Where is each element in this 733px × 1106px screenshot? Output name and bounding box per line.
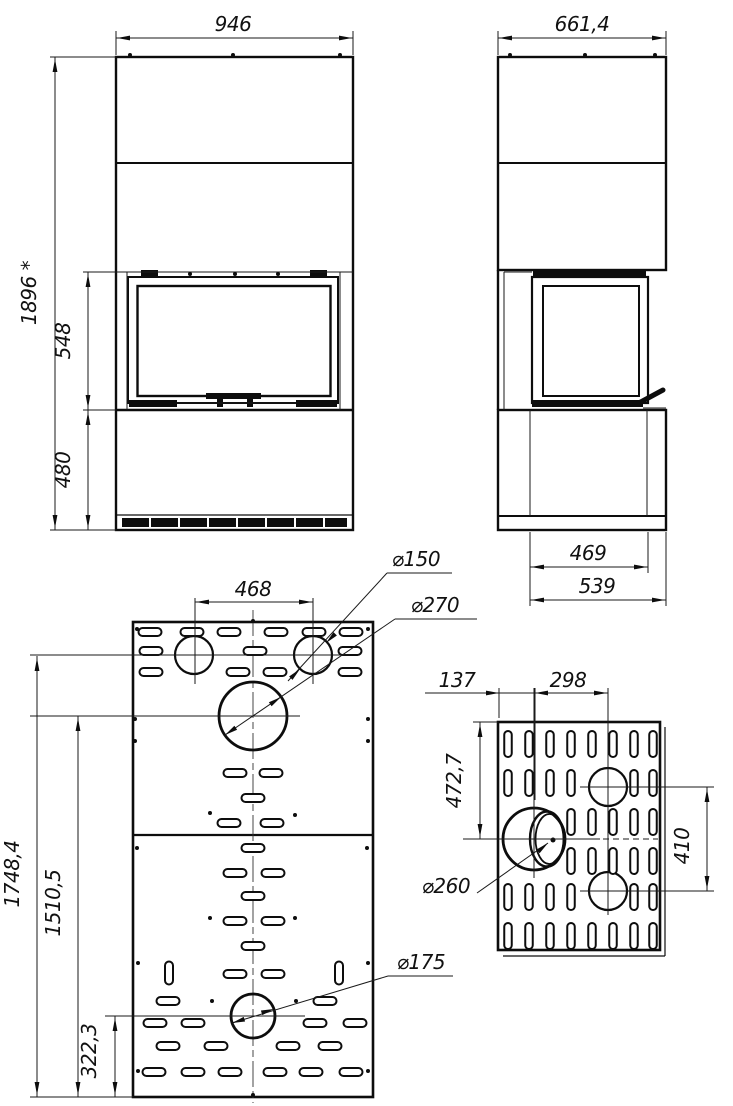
vent-slot xyxy=(182,1068,205,1076)
front-view xyxy=(116,57,353,530)
vent-slot xyxy=(264,668,287,676)
weld-dot xyxy=(653,53,657,57)
dim-rear-flue-dia-150: ⌀150 xyxy=(392,547,440,571)
door-sill-right xyxy=(296,400,337,407)
vent-slot xyxy=(303,628,326,636)
dimension-arrow xyxy=(76,1082,81,1095)
vent-slot xyxy=(630,770,638,796)
fireplace-drawing: 946 1896 * 548 480 661,4 469 539 468 ⌀15… xyxy=(0,0,733,1106)
vent-slot xyxy=(649,809,657,835)
vent-slot xyxy=(546,923,554,949)
weld-dot xyxy=(338,53,342,57)
vent-slot xyxy=(649,731,657,757)
door-lever-handle xyxy=(637,390,663,404)
vent-slot xyxy=(504,923,512,949)
vent-slot xyxy=(265,628,288,636)
vent-slot xyxy=(340,628,363,636)
dimension-arrow xyxy=(35,1082,40,1095)
vent-slot xyxy=(340,1068,363,1076)
weld-dot xyxy=(208,811,212,815)
dim-rear-center-flue-height: 1510,5 xyxy=(41,870,65,937)
dimension-arrow xyxy=(53,59,58,72)
weld-dot xyxy=(210,999,214,1003)
dim-front-overall-height: 1896 * xyxy=(17,260,41,325)
vent-slot xyxy=(630,848,638,874)
dimension-arrow xyxy=(499,36,512,41)
vent-slot xyxy=(157,1042,180,1050)
weld-dot xyxy=(583,53,587,57)
weld-dot xyxy=(251,619,255,623)
weld-dot xyxy=(208,916,212,920)
thin-line xyxy=(232,976,388,1023)
vent-slot xyxy=(224,917,247,925)
vent-slot xyxy=(546,770,554,796)
weld-dot xyxy=(366,717,370,721)
vent-slot xyxy=(567,884,575,910)
weld-dot xyxy=(294,999,298,1003)
vent-slot xyxy=(525,770,533,796)
vent-slot xyxy=(224,769,247,777)
dimension-arrow xyxy=(196,600,209,605)
vent-slot xyxy=(181,628,204,636)
vent-slot xyxy=(630,923,638,949)
weld-dot xyxy=(508,53,512,57)
spigot-axis-mark xyxy=(551,838,556,843)
dimension-arrow xyxy=(113,1082,118,1095)
weld-dot xyxy=(293,813,297,817)
front-body-outline xyxy=(116,57,353,530)
side-pedestal xyxy=(498,410,666,530)
vent-slot xyxy=(244,647,267,655)
weld-dot xyxy=(128,53,132,57)
rear-vent-slots xyxy=(139,628,367,1076)
vent-slot xyxy=(182,1019,205,1027)
side-vent-slots xyxy=(504,731,657,949)
vent-slot xyxy=(143,1068,166,1076)
weld-dot xyxy=(366,1069,370,1073)
vent-slot xyxy=(262,970,285,978)
dim-rear-flue-dia-175: ⌀175 xyxy=(397,950,445,974)
vent-slot xyxy=(567,848,575,874)
side-door-profile xyxy=(532,277,648,403)
side-door-glass xyxy=(543,286,639,396)
vent-slot xyxy=(224,869,247,877)
vent-slot xyxy=(649,848,657,874)
dimension-arrow xyxy=(76,718,81,731)
weld-dot xyxy=(133,739,137,743)
dimension-arrow xyxy=(478,724,483,737)
vent-slot xyxy=(567,809,575,835)
vent-slot xyxy=(260,769,283,777)
vent-slot xyxy=(630,809,638,835)
door-sill-left xyxy=(129,400,177,407)
vent-slot xyxy=(588,923,596,949)
dimension-arrow xyxy=(535,691,548,696)
dim-rear-flue-dia-270: ⌀270 xyxy=(411,593,459,617)
vent-slot xyxy=(344,1019,367,1027)
vent-slot xyxy=(144,1019,167,1027)
dim-side-base-depth: 539 xyxy=(579,574,616,598)
weld-dots xyxy=(128,53,657,1097)
weld-dot xyxy=(366,739,370,743)
vent-slot xyxy=(609,809,617,835)
weld-dot xyxy=(188,272,192,276)
weld-dot xyxy=(136,961,140,965)
dimension-arrow xyxy=(261,1009,274,1015)
dimension-arrow xyxy=(86,274,91,287)
weld-dot xyxy=(251,1093,255,1097)
dimension-labels: 946 1896 * 548 480 661,4 469 539 468 ⌀15… xyxy=(0,12,694,1078)
vent-slot xyxy=(525,884,533,910)
vent-slot xyxy=(227,668,250,676)
door-handle-bar xyxy=(206,393,261,399)
side-door-top-seal xyxy=(533,271,646,277)
dim-front-firebox-height: 548 xyxy=(51,323,75,360)
vent-slot xyxy=(649,923,657,949)
dimension-arrow xyxy=(113,1018,118,1031)
dim-rear-lower-flue-height: 322,3 xyxy=(77,1024,101,1079)
dimension-arrow xyxy=(705,789,710,802)
dimension-arrow xyxy=(531,598,544,603)
dim-sp-vertical-spacing: 410 xyxy=(670,828,694,865)
dim-rear-flue-axis-height: 1748,4 xyxy=(0,841,24,908)
vent-slot xyxy=(525,731,533,757)
dimension-arrow xyxy=(486,691,499,696)
dimension-arrow xyxy=(705,876,710,889)
weld-dot xyxy=(366,627,370,631)
vent-slot xyxy=(205,1042,228,1050)
dimension-arrow xyxy=(86,395,91,408)
weld-dot xyxy=(365,846,369,850)
vent-slot xyxy=(140,647,163,655)
side-door-bottom-seal xyxy=(532,400,643,407)
vent-slot xyxy=(504,884,512,910)
vent-slot xyxy=(261,819,284,827)
dimension-arrow xyxy=(299,600,312,605)
technical-drawing-sheet: 946 1896 * 548 480 661,4 469 539 468 ⌀15… xyxy=(0,0,733,1106)
vent-slot xyxy=(339,668,362,676)
dim-sp-top-offset: 472,7 xyxy=(442,753,466,809)
rear-panel-view xyxy=(133,610,373,1103)
dim-sp-axis-spacing: 298 xyxy=(550,668,587,692)
weld-dot xyxy=(133,717,137,721)
dimension-arrow xyxy=(634,565,647,570)
door-hinge-left xyxy=(141,270,158,278)
vent-slot xyxy=(649,770,657,796)
side-view xyxy=(498,57,666,530)
dimension-arrow xyxy=(531,565,544,570)
weld-dot xyxy=(233,272,237,276)
vent-slot xyxy=(339,647,362,655)
vent-slot xyxy=(630,731,638,757)
dim-sp-edge-offset: 137 xyxy=(439,668,476,692)
vent-slot xyxy=(504,731,512,757)
vent-slot xyxy=(157,997,180,1005)
dimension-arrow xyxy=(339,36,352,41)
vent-slot xyxy=(649,884,657,910)
vent-slot xyxy=(224,970,247,978)
weld-dot xyxy=(231,53,235,57)
vent-slot xyxy=(609,848,617,874)
vent-slot xyxy=(319,1042,342,1050)
vent-slot xyxy=(242,892,265,900)
vent-slot xyxy=(264,1068,287,1076)
vent-slot xyxy=(277,1042,300,1050)
vent-slot xyxy=(588,848,596,874)
dimension-arrow xyxy=(53,515,58,528)
door-hinge-right xyxy=(310,270,327,278)
weld-dot xyxy=(293,916,297,920)
base-vent-grille xyxy=(122,518,347,527)
vent-slot xyxy=(242,942,265,950)
weld-dot xyxy=(135,846,139,850)
dimension-arrow xyxy=(594,691,607,696)
dim-front-width: 946 xyxy=(215,12,252,36)
dim-sp-flue-dia-260: ⌀260 xyxy=(422,874,470,898)
dimension-arrow xyxy=(652,36,665,41)
vent-slot xyxy=(314,997,337,1005)
vent-slot xyxy=(567,731,575,757)
weld-dot xyxy=(366,961,370,965)
vent-slot xyxy=(546,731,554,757)
vent-slot xyxy=(588,731,596,757)
dim-front-base-height: 480 xyxy=(51,452,75,489)
vent-slot-vertical xyxy=(165,962,173,985)
vent-slot xyxy=(609,731,617,757)
vent-slot xyxy=(588,809,596,835)
vent-slot-vertical xyxy=(335,962,343,985)
dimension-arrow xyxy=(35,658,40,671)
dim-side-firebox-depth: 469 xyxy=(570,541,607,565)
dimension-arrow xyxy=(225,726,237,735)
dim-rear-flue-spacing: 468 xyxy=(235,577,272,601)
vent-slot xyxy=(219,1068,242,1076)
vent-slot xyxy=(609,923,617,949)
dimension-arrow xyxy=(232,1017,245,1023)
dimension-arrow xyxy=(86,515,91,528)
firebox-glass xyxy=(138,286,331,396)
vent-slot xyxy=(139,628,162,636)
dimension-arrow xyxy=(86,412,91,425)
vent-slot xyxy=(262,869,285,877)
vent-slot xyxy=(567,923,575,949)
dimension-arrow xyxy=(117,36,130,41)
vent-slot xyxy=(567,770,575,796)
dim-side-depth: 661,4 xyxy=(555,12,610,36)
dimension-arrow xyxy=(269,697,281,706)
dimension-arrow xyxy=(652,598,665,603)
vent-slot xyxy=(300,1068,323,1076)
weld-dot xyxy=(136,1069,140,1073)
vent-slot xyxy=(218,628,241,636)
dimension-arrow xyxy=(478,824,483,837)
vent-slot xyxy=(262,917,285,925)
weld-dot xyxy=(276,272,280,276)
weld-dot xyxy=(135,627,139,631)
vent-slot xyxy=(525,923,533,949)
vent-slot xyxy=(630,884,638,910)
vent-slot xyxy=(304,1019,327,1027)
firebox-door-frame xyxy=(128,277,338,403)
vent-slot xyxy=(218,819,241,827)
vent-slot xyxy=(546,884,554,910)
vent-slot xyxy=(140,668,163,676)
vent-slot xyxy=(504,770,512,796)
vent-slot xyxy=(242,844,265,852)
vent-slot xyxy=(242,794,265,802)
